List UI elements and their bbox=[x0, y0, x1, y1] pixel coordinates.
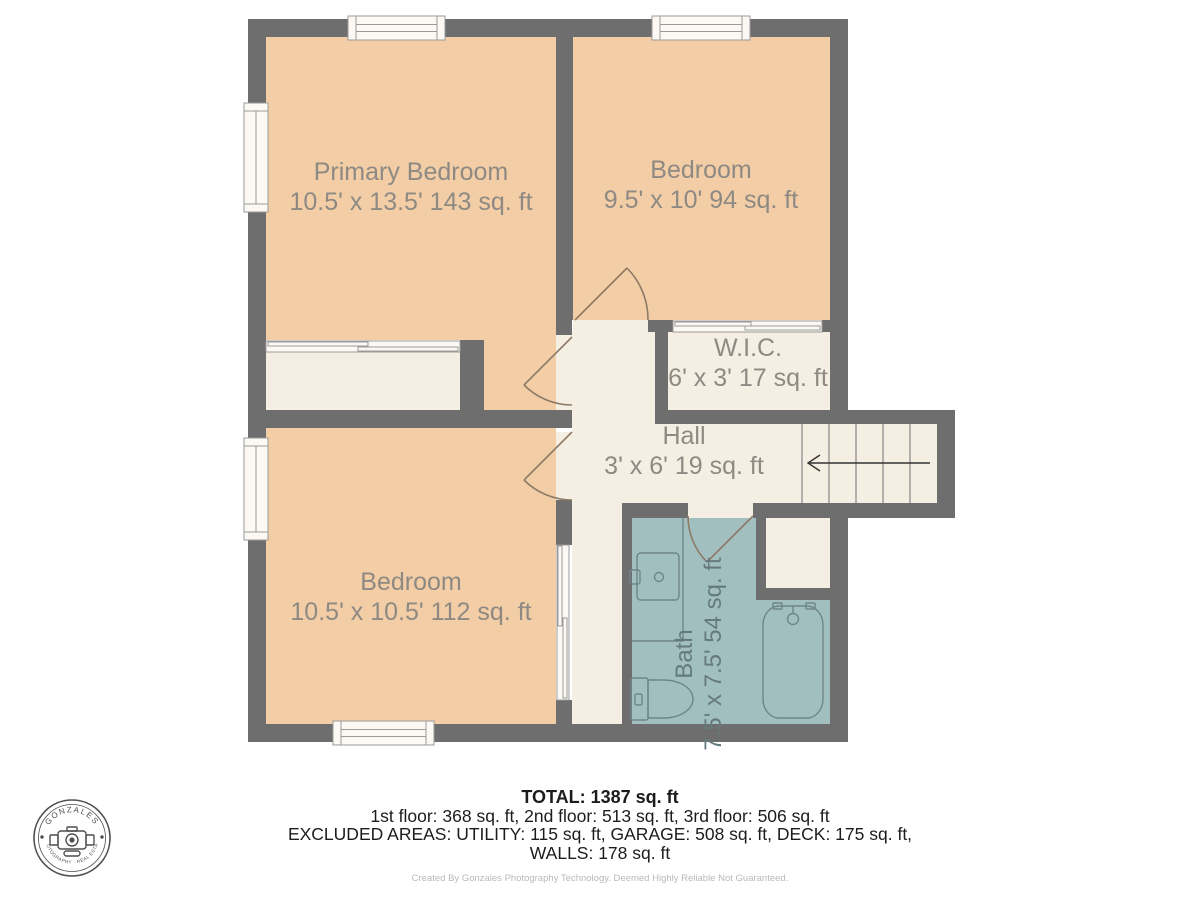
wall bbox=[822, 320, 848, 332]
room-dims: 9.5' x 10' 94 sq. ft bbox=[604, 185, 798, 215]
room-hall-corridor bbox=[572, 503, 622, 724]
door-opening bbox=[573, 320, 648, 332]
room-dims: 10.5' x 10.5' 112 sq. ft bbox=[290, 597, 531, 627]
window bbox=[652, 16, 750, 40]
stamp-top-text: GONZALES bbox=[43, 805, 101, 826]
walls-area: WALLS: 178 sq. ft bbox=[0, 844, 1200, 863]
room-name: Bath bbox=[670, 557, 699, 750]
wall bbox=[830, 503, 848, 742]
room-closet bbox=[266, 352, 460, 415]
room-dims: 7.5' x 7.5' 54 sq. ft bbox=[699, 557, 728, 750]
room-primary-bedroom-nook bbox=[484, 332, 556, 415]
room-dims: 3' x 6' 19 sq. ft bbox=[604, 451, 764, 481]
wall bbox=[248, 19, 848, 37]
window bbox=[244, 103, 268, 212]
room-name: Bedroom bbox=[604, 155, 798, 185]
excluded-areas: EXCLUDED AREAS: UTILITY: 115 sq. ft, GAR… bbox=[0, 825, 1200, 844]
area-summary: TOTAL: 1387 sq. ft 1st floor: 368 sq. ft… bbox=[0, 788, 1200, 889]
wall bbox=[937, 410, 955, 518]
room-name: Hall bbox=[604, 421, 764, 451]
sliding-door bbox=[673, 321, 822, 332]
room-name: Bedroom bbox=[290, 567, 531, 597]
wall bbox=[622, 503, 688, 518]
room-bath-tub-zone bbox=[756, 600, 830, 724]
room-dims: 10.5' x 13.5' 143 sq. ft bbox=[289, 187, 532, 217]
wall bbox=[830, 19, 848, 410]
wall bbox=[655, 332, 668, 410]
door-opening bbox=[688, 503, 753, 518]
wall bbox=[756, 518, 766, 588]
room-label-wic: W.I.C. 6' x 3' 17 sq. ft bbox=[668, 333, 828, 393]
wall bbox=[248, 410, 572, 428]
room-name: Primary Bedroom bbox=[289, 157, 532, 187]
total-area: TOTAL: 1387 sq. ft bbox=[0, 788, 1200, 807]
floor-plan-drawing bbox=[0, 0, 1200, 900]
room-linen-closet bbox=[766, 518, 830, 588]
door-opening bbox=[556, 335, 572, 410]
room-label-hall: Hall 3' x 6' 19 sq. ft bbox=[604, 421, 764, 481]
wall bbox=[556, 19, 573, 320]
wall bbox=[460, 340, 484, 415]
wall bbox=[648, 320, 673, 332]
room-label-bath: Bath 7.5' x 7.5' 54 sq. ft bbox=[670, 557, 728, 750]
room-label-primary-bedroom: Primary Bedroom 10.5' x 13.5' 143 sq. ft bbox=[289, 157, 532, 217]
wall bbox=[556, 500, 572, 545]
wall bbox=[556, 320, 572, 335]
window bbox=[348, 16, 445, 40]
brand-stamp-logo: GONZALES PHOTOGRAPHY · REAL ESTATE bbox=[31, 797, 113, 879]
credit-line: Created By Gonzales Photography Technolo… bbox=[0, 870, 1200, 889]
wall bbox=[556, 700, 572, 724]
stamp-dot-right bbox=[100, 835, 103, 838]
room-dims: 6' x 3' 17 sq. ft bbox=[668, 363, 828, 393]
window bbox=[244, 438, 268, 540]
floor-plan-page: Primary Bedroom 10.5' x 13.5' 143 sq. ft… bbox=[0, 0, 1200, 900]
sliding-door bbox=[557, 545, 569, 700]
floor-areas: 1st floor: 368 sq. ft, 2nd floor: 513 sq… bbox=[0, 807, 1200, 826]
wall bbox=[753, 503, 955, 518]
sliding-door bbox=[266, 341, 460, 352]
wall bbox=[756, 588, 830, 600]
room-label-bedroom-bottom-left: Bedroom 10.5' x 10.5' 112 sq. ft bbox=[290, 567, 531, 627]
room-label-bedroom-top-right: Bedroom 9.5' x 10' 94 sq. ft bbox=[604, 155, 798, 215]
window bbox=[333, 721, 434, 745]
room-name: W.I.C. bbox=[668, 333, 828, 363]
stamp-dot-left bbox=[40, 835, 43, 838]
camera-icon bbox=[50, 827, 94, 856]
door-opening bbox=[556, 432, 572, 500]
